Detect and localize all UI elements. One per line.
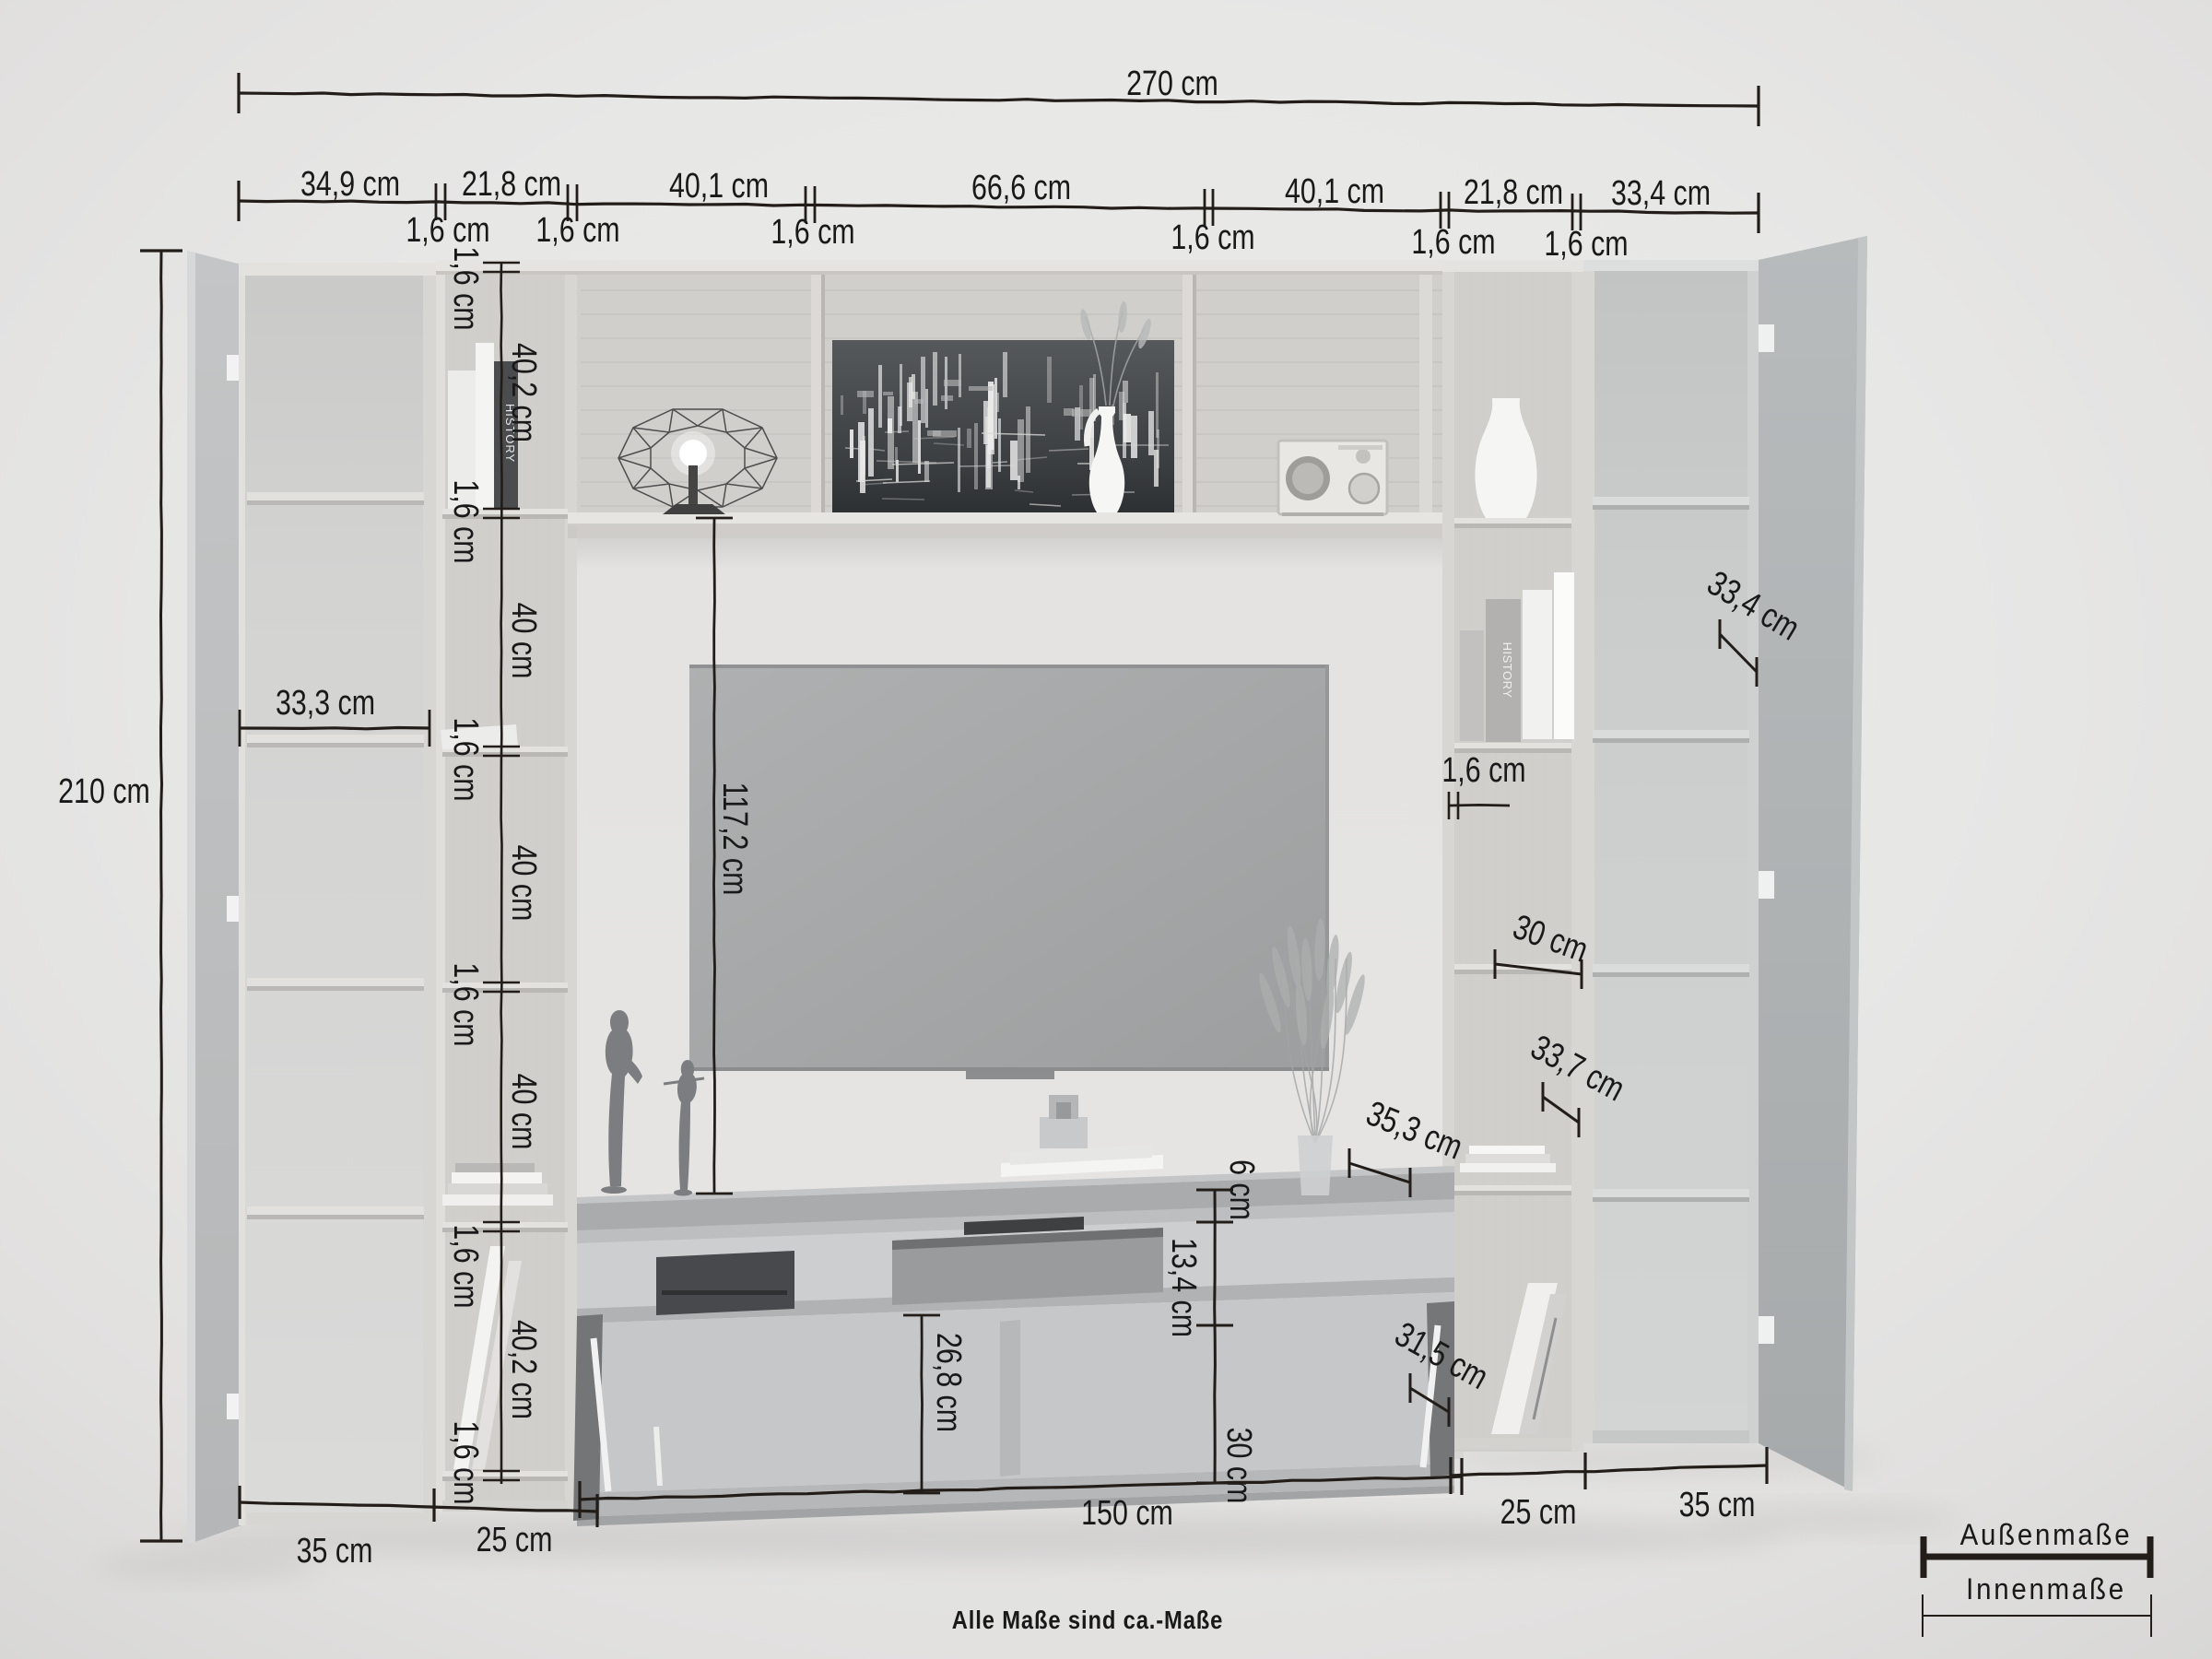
svg-text:21,8 cm: 21,8 cm [462, 165, 561, 204]
svg-text:40 cm: 40 cm [504, 603, 543, 679]
svg-text:40,2 cm: 40,2 cm [504, 343, 543, 442]
svg-text:35 cm: 35 cm [1679, 1486, 1756, 1524]
svg-text:1,6 cm: 1,6 cm [446, 962, 485, 1046]
svg-text:26,8 cm: 26,8 cm [929, 1333, 968, 1432]
svg-text:Außenmaße: Außenmaße [1960, 1518, 2133, 1551]
svg-text:40,1 cm: 40,1 cm [1285, 172, 1384, 211]
svg-text:1,6 cm: 1,6 cm [535, 211, 619, 250]
svg-text:1,6 cm: 1,6 cm [446, 1224, 485, 1308]
svg-text:40,1 cm: 40,1 cm [669, 167, 769, 206]
svg-text:25 cm: 25 cm [1500, 1493, 1577, 1532]
svg-text:1,6 cm: 1,6 cm [1544, 225, 1628, 264]
svg-text:35 cm: 35 cm [297, 1532, 373, 1571]
svg-text:270 cm: 270 cm [1126, 65, 1218, 103]
svg-text:40 cm: 40 cm [504, 1074, 543, 1150]
svg-text:30 cm: 30 cm [1219, 1428, 1258, 1504]
svg-text:13,4 cm: 13,4 cm [1164, 1238, 1203, 1337]
svg-text:1,6 cm: 1,6 cm [1171, 218, 1254, 257]
svg-text:34,9 cm: 34,9 cm [300, 165, 400, 204]
svg-text:40,2 cm: 40,2 cm [504, 1320, 543, 1419]
svg-text:1,6 cm: 1,6 cm [406, 211, 489, 250]
svg-text:1,6 cm: 1,6 cm [446, 1420, 485, 1504]
svg-text:HISTORY: HISTORY [1500, 642, 1514, 699]
svg-text:1,6 cm: 1,6 cm [771, 213, 854, 252]
svg-text:1,6 cm: 1,6 cm [1441, 751, 1525, 790]
svg-text:210 cm: 210 cm [58, 772, 150, 811]
svg-text:66,6 cm: 66,6 cm [971, 169, 1071, 207]
svg-text:1,6 cm: 1,6 cm [446, 717, 485, 801]
svg-text:1,6 cm: 1,6 cm [446, 246, 485, 330]
svg-text:25 cm: 25 cm [477, 1521, 553, 1559]
svg-text:150 cm: 150 cm [1081, 1494, 1173, 1533]
svg-text:117,2 cm: 117,2 cm [715, 782, 754, 896]
svg-text:40 cm: 40 cm [504, 845, 543, 922]
svg-text:1,6 cm: 1,6 cm [1411, 223, 1495, 262]
svg-text:21,8 cm: 21,8 cm [1464, 173, 1563, 212]
svg-text:1,6 cm: 1,6 cm [446, 479, 485, 563]
svg-text:6 cm: 6 cm [1222, 1159, 1261, 1220]
svg-text:33,3 cm: 33,3 cm [276, 684, 375, 723]
svg-text:Alle Maße sind ca.-Maße: Alle Maße sind ca.-Maße [952, 1605, 1223, 1634]
svg-text:Innenmaße: Innenmaße [1966, 1572, 2126, 1606]
svg-text:33,4 cm: 33,4 cm [1611, 174, 1711, 213]
